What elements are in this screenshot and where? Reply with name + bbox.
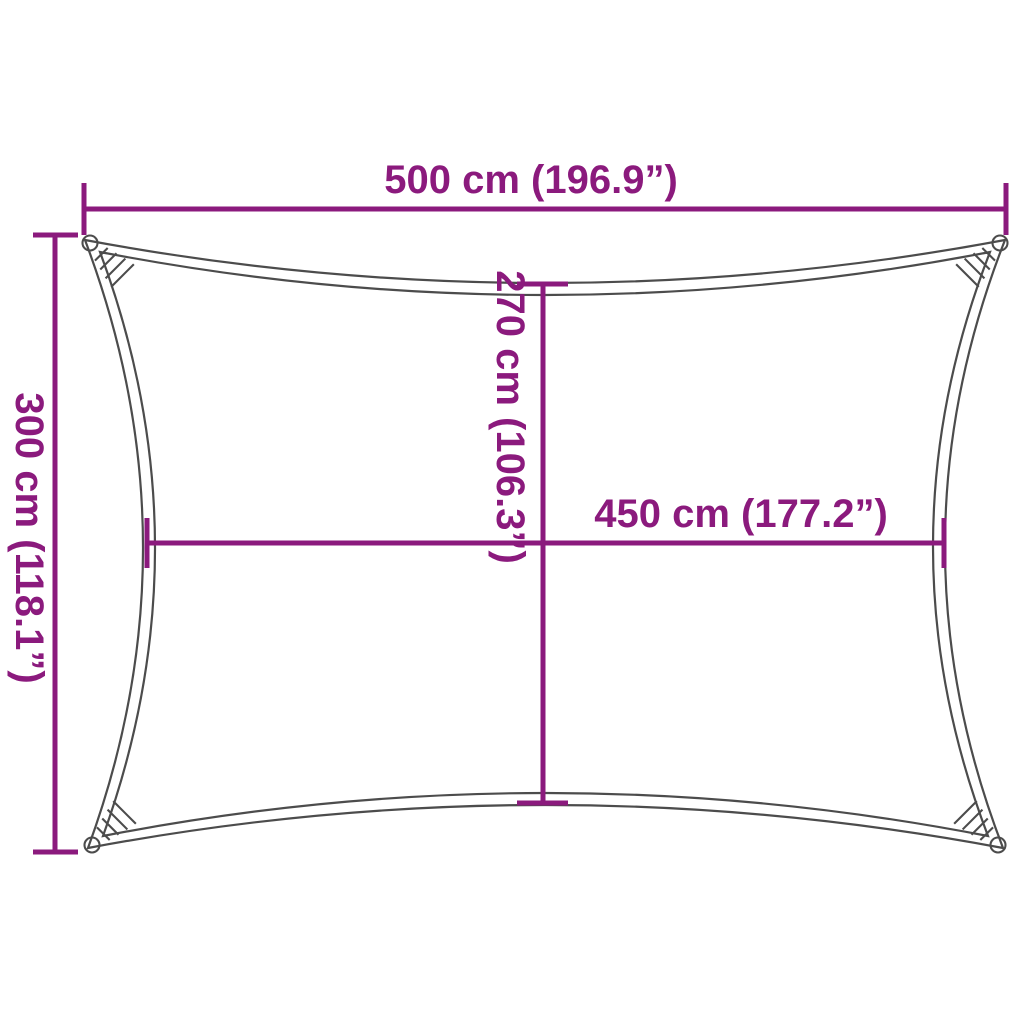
dimension-label-left-height: 300 cm (118.1”) (9, 392, 49, 683)
dimension-label-top-width: 500 cm (196.9”) (384, 160, 678, 200)
dimension-label-center-width: 450 cm (177.2”) (594, 494, 888, 534)
dimension-diagram: 500 cm (196.9”) 300 cm (118.1”) 270 cm (… (0, 0, 1024, 1024)
dimension-label-center-height: 270 cm (106.3”) (490, 270, 530, 564)
